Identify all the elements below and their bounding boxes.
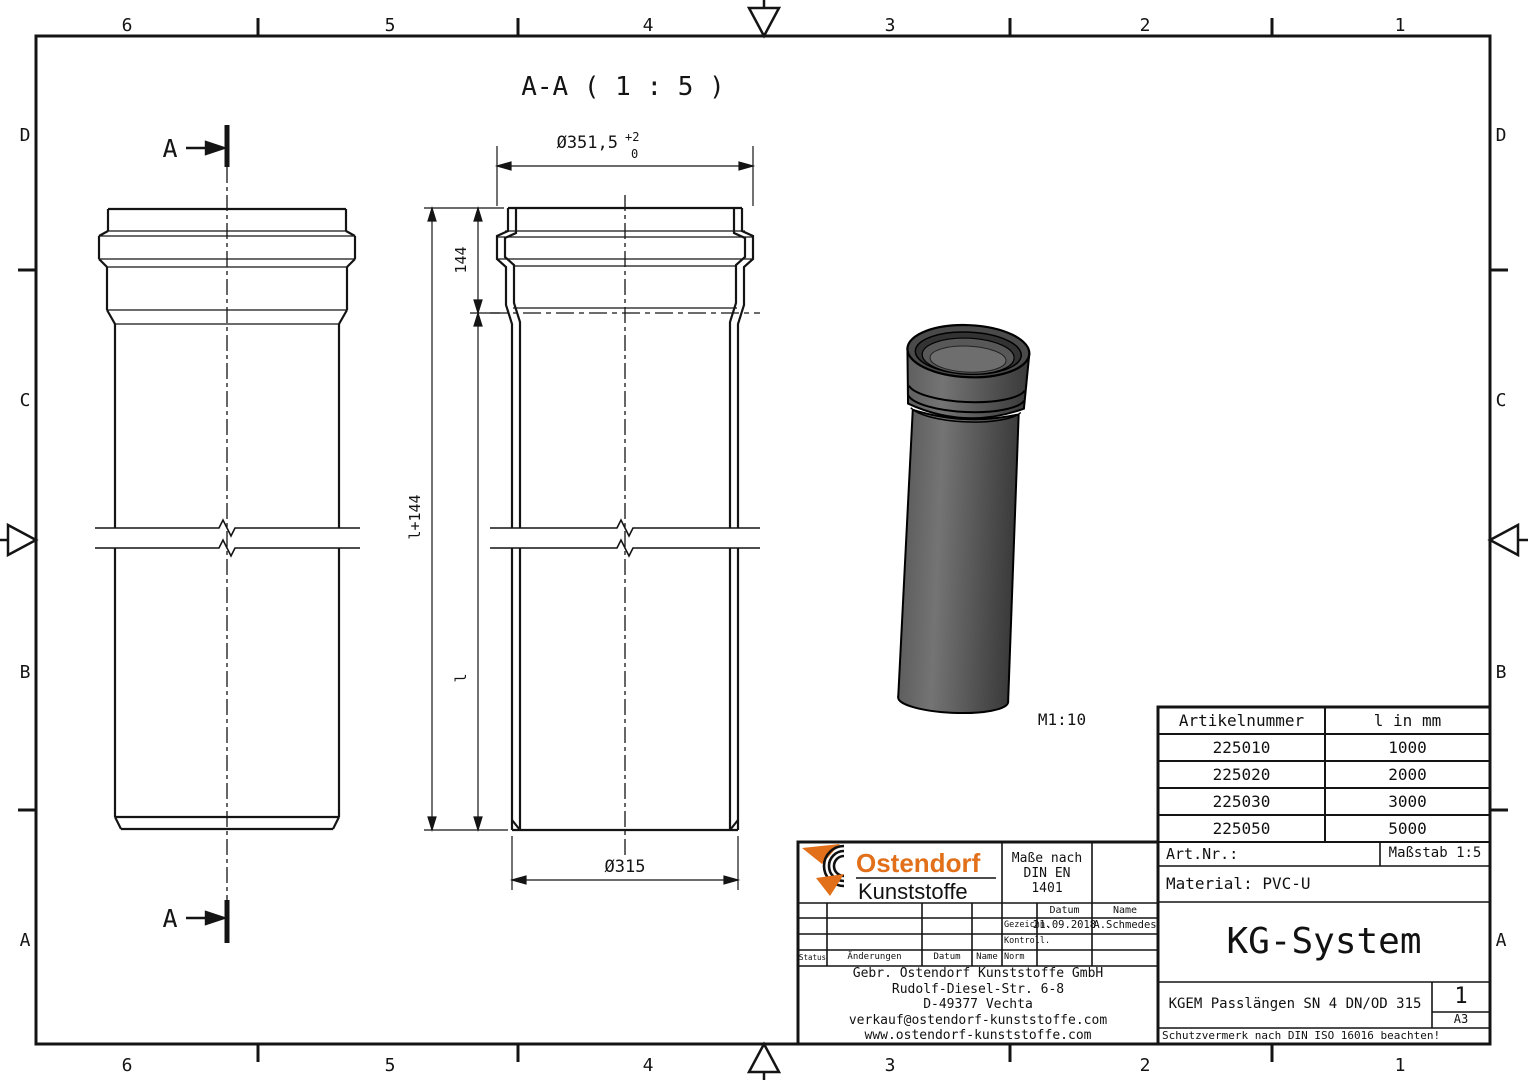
company-street: Rudolf-Diesel-Str. 6-8 (892, 982, 1064, 997)
parts-table-header-artikelnummer: Artikelnummer (1158, 707, 1325, 734)
company-address: Gebr. Ostendorf Kunststoffe GmbH Rudolf-… (798, 966, 1158, 1044)
zone-label: 4 (643, 15, 654, 36)
protection-note: Schutzvermerk nach DIN ISO 16016 beachte… (1162, 1028, 1488, 1044)
company-city: D-49377 Vechta (923, 997, 1033, 1012)
dimensions (424, 146, 753, 890)
zone-label: 3 (885, 1055, 896, 1076)
zone-label: 4 (643, 1055, 654, 1076)
parts-table-cell: 1000 (1325, 734, 1490, 761)
section-label-top: A (162, 134, 177, 163)
zone-label: 5 (385, 1055, 396, 1076)
revision-checked-label: Kontroll. (1004, 934, 1037, 950)
zone-label: 1 (1395, 1055, 1406, 1076)
revision-norm-label: Norm (1004, 950, 1037, 966)
zone-label: 2 (1140, 15, 1151, 36)
system-title: KG-System (1158, 902, 1490, 982)
dimensions-note-line: 1401 (1031, 881, 1062, 896)
parts-table-cell: 225030 (1158, 788, 1325, 815)
parts-table-cell: 5000 (1325, 815, 1490, 842)
dimensions-note-line: Maße nach (1012, 851, 1082, 866)
logo-subtitle: Kunststoffe (858, 879, 968, 904)
revision-drawn-name: A.Schmedes (1092, 918, 1158, 934)
zone-label: B (1496, 662, 1507, 683)
revision-name-label: Name (972, 950, 1002, 966)
material-value: Material: PVC-U (1166, 866, 1486, 902)
company-logo: Ostendorf Kunststoffe (802, 844, 996, 904)
sheet-number: 1 (1432, 982, 1490, 1012)
dimensions-note: Maße nach DIN EN 1401 (1002, 844, 1092, 903)
sheet-format: A3 (1432, 1012, 1490, 1028)
dim-length: l (452, 673, 470, 682)
zone-label: 6 (122, 15, 133, 36)
dim-pipe-od: Ø315 (605, 857, 646, 877)
zone-label: D (20, 125, 31, 146)
dim-socket-od-tol-plus: +2 (625, 130, 639, 144)
pipe-section-view (490, 195, 760, 855)
section-label-bottom: A (162, 904, 177, 933)
zone-label: 3 (885, 15, 896, 36)
parts-table-cell: 225020 (1158, 761, 1325, 788)
zone-label: 1 (1395, 15, 1406, 36)
dim-socket-depth: 144 (452, 246, 470, 273)
logo-wordmark: Ostendorf (856, 848, 981, 878)
revision-date-header: Datum (1037, 903, 1092, 918)
pipe-3d-render (892, 323, 1031, 716)
parts-table-cell: 2000 (1325, 761, 1490, 788)
zone-label: 2 (1140, 1055, 1151, 1076)
logo-arc-inner (834, 856, 844, 876)
zone-label: C (20, 390, 31, 411)
render-scale-label: M1:10 (1038, 710, 1086, 729)
zone-label: 6 (122, 1055, 133, 1076)
revision-date-label: Datum (922, 950, 972, 966)
zone-label: D (1496, 125, 1507, 146)
drawing-description: KGEM Passlängen SN 4 DN/OD 315 (1158, 982, 1432, 1028)
parts-table-cell: 3000 (1325, 788, 1490, 815)
section-view-title: A-A ( 1 : 5 ) (521, 72, 725, 102)
revision-name-header: Name (1092, 903, 1158, 918)
art-nr-label: Art.Nr.: (1166, 842, 1376, 866)
company-name: Gebr. Ostendorf Kunststoffe GmbH (853, 966, 1103, 981)
zone-label: 5 (385, 15, 396, 36)
parts-table-cell: 225050 (1158, 815, 1325, 842)
zone-label: A (1496, 930, 1507, 951)
dim-total-length: l+144 (406, 494, 424, 539)
zone-label: C (1496, 390, 1507, 411)
pipe-side-view (95, 125, 360, 943)
parts-table-cell: 225010 (1158, 734, 1325, 761)
zone-label: A (20, 930, 31, 951)
revision-status-label: Status (798, 950, 827, 966)
scale-label: Maßstab 1:5 (1380, 842, 1490, 866)
parts-table-header-l: l in mm (1325, 707, 1490, 734)
dim-socket-od: Ø351,5 (557, 133, 618, 153)
dimensions-note-line: DIN EN (1024, 866, 1071, 881)
dim-socket-od-tol-minus: 0 (631, 147, 638, 161)
revision-drawn-date: 21.09.2018 (1037, 918, 1092, 934)
drawing-sheet: 6 5 4 3 2 1 6 5 4 3 2 1 D C B A D C B A (0, 0, 1528, 1080)
zone-label: B (20, 662, 31, 683)
company-website: www.ostendorf-kunststoffe.com (865, 1028, 1092, 1043)
company-email: verkauf@ostendorf-kunststoffe.com (849, 1013, 1107, 1028)
revision-changes-label: Änderungen (827, 950, 922, 966)
